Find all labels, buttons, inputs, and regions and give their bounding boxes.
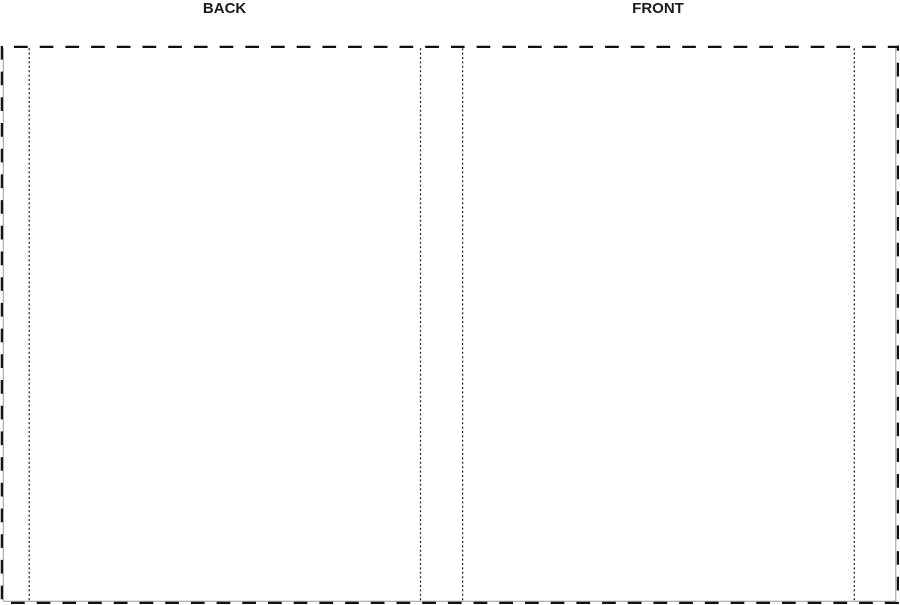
svg-text:BACK: BACK [203,0,246,17]
svg-text:FRONT: FRONT [632,0,684,17]
